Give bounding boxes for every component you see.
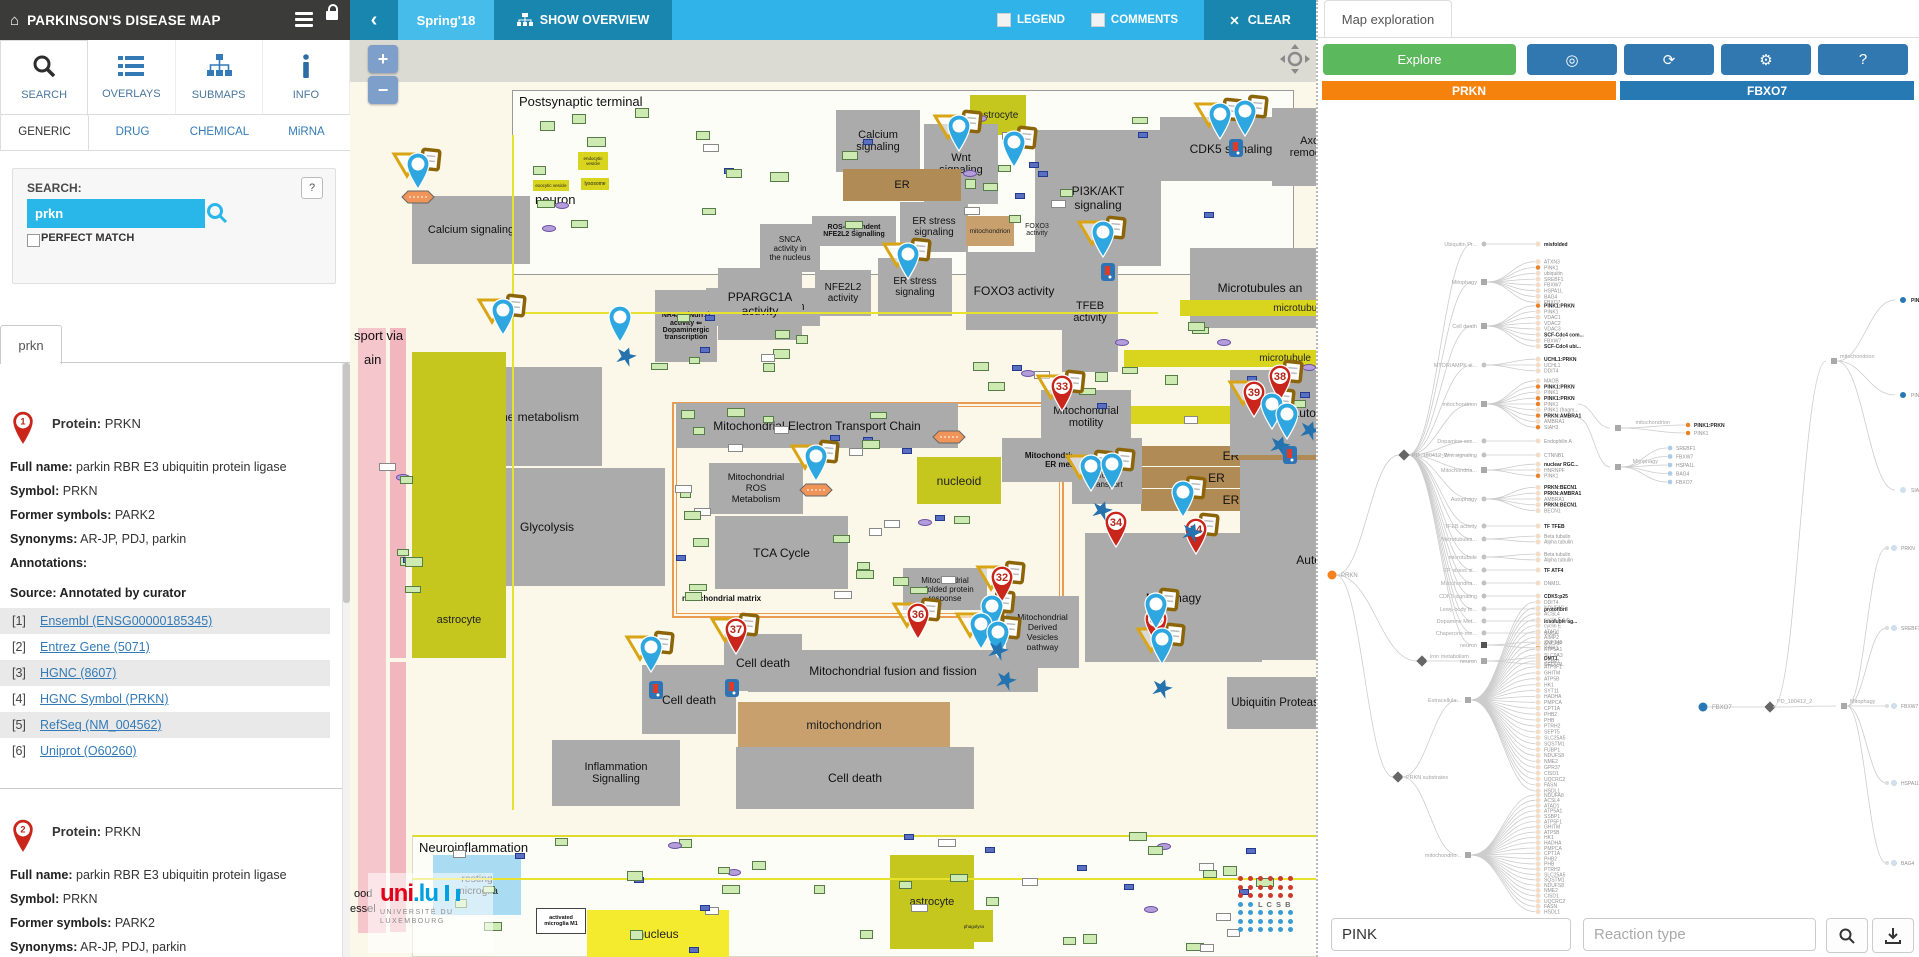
result-field: Symbol: PRKN	[10, 484, 98, 498]
map-pin-blue	[1209, 103, 1231, 139]
svg-text:38: 38	[1274, 371, 1286, 383]
overlay-badge	[1283, 446, 1297, 464]
sidebar-tab-submaps[interactable]: SUBMAPS	[176, 40, 263, 114]
sidebar-subtab-mirna[interactable]: MiRNA	[263, 114, 350, 150]
svg-text:Autophagy: Autophagy	[1451, 497, 1478, 503]
map-exploration-panel: Map exploration Explore ◎⟳⚙? PRKNFBXO7 m…	[1316, 0, 1919, 957]
clear-icon: ✕	[1229, 13, 1239, 28]
download-icon	[1884, 927, 1902, 945]
svg-text:PINK1: PINK1	[1911, 393, 1919, 399]
svg-text:39: 39	[1248, 387, 1260, 399]
result-field: Synonyms: AR-JP, PDJ, parkin	[10, 940, 186, 954]
annotation-link-row: [2]Entrez Gene (5071)	[0, 634, 330, 660]
svg-text:neuron: neuron	[1460, 659, 1477, 665]
annotation-index: [4]	[12, 692, 40, 706]
annotation-link-row: [4]HGNC Symbol (PRKN)	[0, 686, 330, 712]
svg-text:PD_180412_2: PD_180412_2	[1412, 453, 1447, 459]
search-label: SEARCH:	[27, 181, 82, 195]
svg-text:Cell death: Cell death	[1452, 324, 1477, 330]
download-button[interactable]	[1872, 918, 1914, 953]
map-pin-red-33: 33	[1051, 375, 1073, 411]
gene-query-input[interactable]	[1331, 918, 1571, 951]
svg-text:HSDL1: HSDL1	[1544, 909, 1560, 915]
map-pin-blue	[492, 299, 514, 335]
sidebar-tab-info[interactable]: INFO	[263, 40, 350, 114]
comments-label: COMMENTS	[1111, 14, 1178, 26]
map-pin-blue	[1101, 453, 1123, 489]
annotation-link[interactable]: RefSeq (NM_004562)	[40, 718, 162, 732]
svg-text:34: 34	[1110, 517, 1123, 529]
result-pin-icon: 1	[10, 410, 36, 451]
sidebar-tab-overlays[interactable]: OVERLAYS	[88, 40, 175, 114]
svg-text:Mitochondria...: Mitochondria...	[1441, 468, 1478, 474]
result-field: Full name: parkin RBR E3 ubiquitin prote…	[10, 868, 287, 882]
overlay-splat	[994, 668, 1019, 692]
svg-text:PD_180412_2: PD_180412_2	[1777, 699, 1812, 705]
app-title: PARKINSON'S DISEASE MAP	[27, 13, 221, 28]
svg-text:TF ATF4: TF ATF4	[1544, 568, 1564, 574]
search-panel: SEARCH: ? PERFECT MATCH	[12, 168, 336, 284]
result-field: Former symbols: PARK2	[10, 916, 155, 930]
map-pin-blue	[1080, 455, 1102, 491]
sidebar-scrollbar-thumb[interactable]	[343, 363, 350, 603]
result-divider	[0, 788, 342, 789]
result-field: Synonyms: AR-JP, PDJ, parkin	[10, 532, 186, 546]
svg-text:PINK1:PRKN: PINK1:PRKN	[1911, 298, 1919, 304]
overlay-badge	[725, 679, 739, 697]
overlay-splat	[614, 344, 639, 368]
annotation-link-row: [5]RefSeq (NM_004562)	[0, 712, 330, 738]
svg-text:SCF-Cdc4 ubi...: SCF-Cdc4 ubi...	[1544, 344, 1582, 350]
svg-text:PINK1:PRKN: PINK1:PRKN	[1694, 423, 1725, 429]
annotation-link[interactable]: Uniprot (O60260)	[40, 744, 137, 758]
annotation-index: [6]	[12, 744, 40, 758]
map-pin-blue	[640, 636, 662, 672]
svg-text:Chaperone-me...: Chaperone-me...	[1436, 631, 1478, 637]
svg-text:Ubiquitin Pr...: Ubiquitin Pr...	[1444, 242, 1477, 248]
lcsb-logo: L C S B	[1238, 876, 1300, 936]
svg-text:neuron: neuron	[1460, 643, 1477, 649]
svg-text:PINK1: PINK1	[1544, 474, 1559, 480]
result-field: Annotations:	[10, 556, 87, 570]
search-input[interactable]	[27, 199, 205, 228]
sidebar-tab-search[interactable]: SEARCH	[0, 40, 88, 114]
zoom-in-button[interactable]: +	[368, 45, 398, 73]
legend-checkbox[interactable]	[997, 13, 1011, 27]
info-icon	[300, 54, 312, 83]
clear-button[interactable]: ✕CLEAR	[1204, 0, 1316, 40]
annotation-link-row: [3]HGNC (8607)	[0, 660, 330, 686]
show-overview-label: SHOW OVERVIEW	[540, 13, 650, 27]
result-title[interactable]: Protein: PRKN	[52, 824, 141, 839]
perfect-match-checkbox[interactable]	[27, 234, 40, 247]
svg-text:FBXW7: FBXW7	[1676, 454, 1693, 460]
submaps-icon	[206, 54, 232, 83]
svg-text:TFEB activity: TFEB activity	[1445, 524, 1478, 530]
svg-text:Dopamine sec...: Dopamine sec...	[1437, 439, 1477, 445]
result-field: Full name: parkin RBR E3 ubiquitin prote…	[10, 460, 287, 474]
result-field: Former symbols: PARK2	[10, 508, 155, 522]
show-overview-button[interactable]: SHOW OVERVIEW	[494, 0, 672, 40]
svg-text:FBXO7: FBXO7	[1712, 705, 1732, 711]
annotation-index: [1]	[12, 614, 40, 628]
overlay-badge	[1101, 263, 1115, 281]
overlays-icon	[118, 55, 144, 82]
sidebar-tab-label: OVERLAYS	[102, 88, 161, 100]
svg-text:Alpha tubulin: Alpha tubulin	[1544, 540, 1573, 546]
result-source: Source: Annotated by curator	[10, 586, 186, 600]
annotation-index: [2]	[12, 640, 40, 654]
sidebar-tabs: SEARCHOVERLAYSSUBMAPSINFO	[0, 40, 350, 115]
map-pin-red-34: 34	[1105, 511, 1127, 547]
svg-text:PRKN substrates: PRKN substrates	[1406, 775, 1448, 781]
overlay-splat	[1150, 676, 1175, 700]
svg-text:TF TFEB: TF TFEB	[1544, 524, 1565, 530]
svg-text:1: 1	[20, 417, 25, 427]
map-canvas[interactable]: Postsynaptic terminalastrocyteCalcium si…	[350, 40, 1316, 957]
exploration-tree[interactable]: misfoldedUbiquitin Pr...ATXN3PINK1ubiqui…	[1318, 0, 1919, 957]
reaction-type-input[interactable]	[1583, 918, 1816, 951]
collapse-sidebar-button[interactable]: ‹	[350, 0, 398, 40]
svg-text:PRKN: PRKN	[1341, 573, 1358, 579]
search-help-button[interactable]: ?	[301, 177, 323, 199]
map-pin-blue	[1151, 628, 1173, 664]
svg-text:36: 36	[912, 609, 924, 621]
svg-text:BAG4: BAG4	[1901, 861, 1915, 867]
svg-text:BECN1: BECN1	[1544, 508, 1561, 514]
sidebar-subtabs: GENERICDRUGCHEMICALMiRNA	[0, 114, 350, 151]
svg-text:37: 37	[730, 624, 742, 636]
map-pin-blue	[1234, 100, 1256, 136]
search-icon	[32, 54, 56, 83]
map-toolbar: ‹ Spring'18 SHOW OVERVIEW LEGEND COMMENT…	[350, 0, 1316, 40]
svg-text:FBXW7: FBXW7	[1901, 704, 1918, 710]
map-pin-blue	[407, 153, 429, 189]
sidebar-subtab-generic[interactable]: GENERIC	[0, 114, 89, 150]
comments-toggle[interactable]: COMMENTS	[1091, 13, 1178, 27]
tree-search-button[interactable]	[1826, 918, 1868, 953]
svg-text:PRKN: PRKN	[1901, 546, 1915, 552]
svg-text:SIAH3: SIAH3	[1911, 488, 1919, 494]
svg-text:Extracellula...: Extracellula...	[1428, 698, 1461, 704]
svg-text:Endophilin A: Endophilin A	[1544, 439, 1572, 445]
svg-text:DDIT4: DDIT4	[1544, 369, 1559, 375]
svg-text:SREBF1: SREBF1	[1901, 626, 1919, 632]
map-pin-blue	[948, 115, 970, 151]
search-submit-icon[interactable]	[205, 201, 229, 225]
map-pin-blue	[1092, 221, 1114, 257]
svg-text:misfolded: misfolded	[1544, 242, 1568, 248]
sidebar-tab-label: INFO	[293, 89, 319, 101]
svg-text:CTNNB1: CTNNB1	[1544, 453, 1564, 459]
annotation-link[interactable]: Ensembl (ENSG00000185345)	[40, 614, 212, 628]
svg-text:HSPA1L: HSPA1L	[1676, 463, 1695, 469]
perfect-match-label: PERFECT MATCH	[41, 232, 134, 244]
annotation-link[interactable]: HGNC Symbol (PRKN)	[40, 692, 169, 706]
map-pin-blue	[897, 243, 919, 279]
svg-text:Mitophagy: Mitophagy	[1452, 280, 1478, 286]
svg-text:mitochondrio...: mitochondrio...	[1425, 853, 1462, 859]
home-icon[interactable]: ⌂	[10, 12, 19, 29]
overview-icon	[517, 13, 533, 27]
lock-icon[interactable]	[326, 11, 338, 20]
svg-text:mitochondrion: mitochondrion	[1635, 420, 1670, 426]
sidebar-subtab-chemical[interactable]: CHEMICAL	[176, 114, 263, 150]
app-root: ⌂ PARKINSON'S DISEASE MAP SEARCHOVERLAYS…	[0, 0, 1919, 957]
uni-lu-logo: uni.lu UNIVERSITÉ DULUXEMBOURG	[380, 880, 460, 926]
legend-label: LEGEND	[1017, 14, 1065, 26]
sidebar-subtab-drug[interactable]: DRUG	[89, 114, 176, 150]
annotation-index: [5]	[12, 718, 40, 732]
svg-text:33: 33	[1056, 381, 1068, 393]
search-icon	[1838, 927, 1856, 945]
map-pin-red-37: 37	[725, 618, 747, 654]
map-pin-blue	[609, 306, 631, 342]
map-pin-blue	[1172, 481, 1194, 517]
annotation-index: [3]	[12, 666, 40, 680]
map-pin-blue	[805, 445, 827, 481]
svg-text:Alpha tubulin: Alpha tubulin	[1544, 558, 1573, 564]
svg-text:MTOR/AMPK si...: MTOR/AMPK si...	[1434, 363, 1478, 369]
map-pin-blue	[1276, 403, 1298, 439]
zoom-out-button[interactable]: −	[368, 76, 398, 104]
svg-text:PINK1: PINK1	[1694, 431, 1709, 437]
results-tab[interactable]: prkn	[0, 325, 62, 364]
annotation-link[interactable]: Entrez Gene (5071)	[40, 640, 150, 654]
svg-text:Wnt signaling: Wnt signaling	[1444, 453, 1477, 459]
result-title[interactable]: Protein: PRKN	[52, 416, 141, 431]
legend-toggle[interactable]: LEGEND	[997, 13, 1065, 27]
svg-text:FBXO7: FBXO7	[1676, 480, 1693, 486]
annotation-link-row: [1]Ensembl (ENSG00000185345)	[0, 608, 330, 634]
overlay-badge	[1229, 139, 1243, 157]
clear-label: CLEAR	[1248, 13, 1291, 27]
annotation-link[interactable]: HGNC (8607)	[40, 666, 116, 680]
sidebar: SEARCHOVERLAYSSUBMAPSINFO GENERICDRUGCHE…	[0, 40, 350, 957]
svg-text:HSPA1L: HSPA1L	[1901, 781, 1919, 787]
sidebar-tab-label: SUBMAPS	[192, 89, 246, 101]
annotation-link-row: [6]Uniprot (O60260)	[0, 738, 330, 764]
result-field: Symbol: PRKN	[10, 892, 98, 906]
svg-text:SREBF1: SREBF1	[1676, 446, 1696, 452]
svg-text:SIAH3: SIAH3	[1544, 425, 1559, 431]
svg-text:BAG4: BAG4	[1676, 471, 1690, 477]
map-version-tab[interactable]: Spring'18	[398, 0, 494, 40]
overlay-badge	[649, 681, 663, 699]
menu-icon[interactable]	[295, 12, 313, 30]
search-results: 1Protein: PRKNFull name: parkin RBR E3 u…	[0, 363, 342, 957]
sidebar-tab-label: SEARCH	[21, 89, 67, 101]
svg-text:DNM1L: DNM1L	[1544, 581, 1561, 587]
result-pin-icon: 2	[10, 818, 36, 859]
overlay-splat	[1298, 418, 1316, 442]
pan-control-icon[interactable]	[1278, 42, 1312, 76]
svg-text:32: 32	[996, 572, 1008, 584]
map-pin-red-36: 36	[907, 603, 929, 639]
map-pin-blue	[1003, 131, 1025, 167]
svg-text:mitochondrion: mitochondrion	[1442, 402, 1477, 408]
svg-text:2: 2	[20, 825, 25, 835]
comments-checkbox[interactable]	[1091, 13, 1105, 27]
